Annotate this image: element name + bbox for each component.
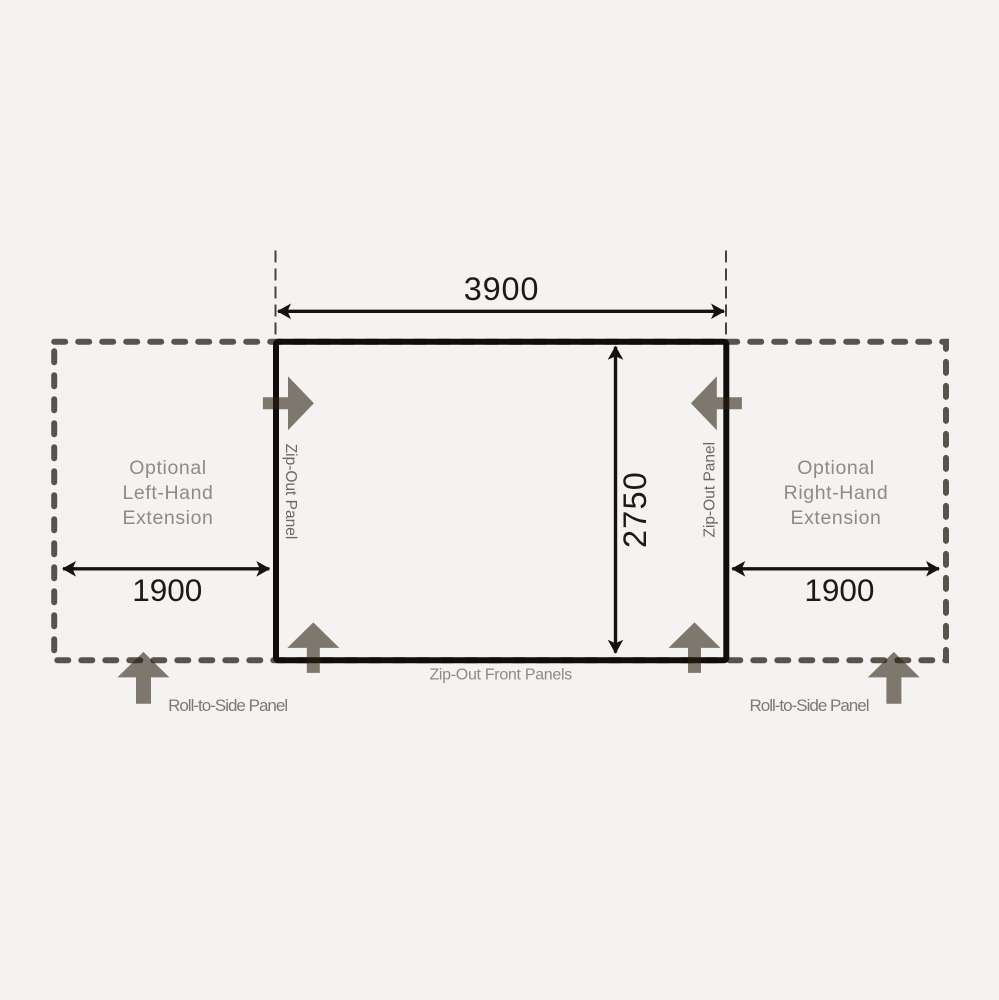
svg-text:1900: 1900 [132,572,202,608]
svg-text:2750: 2750 [617,471,653,548]
svg-text:Roll-to-Side Panel: Roll-to-Side Panel [749,696,868,715]
svg-text:1900: 1900 [804,572,874,608]
svg-text:Extension: Extension [790,507,881,529]
svg-text:Optional: Optional [797,457,874,479]
svg-text:Right-Hand: Right-Hand [784,482,889,504]
svg-text:Extension: Extension [122,507,213,529]
svg-text:Zip-Out Front Panels: Zip-Out Front Panels [429,667,572,684]
svg-text:Roll-to-Side Panel: Roll-to-Side Panel [168,696,287,715]
svg-text:Optional: Optional [129,457,206,479]
svg-text:Left-Hand: Left-Hand [122,482,213,504]
svg-text:3900: 3900 [464,271,540,307]
svg-text:Zip-Out Panel: Zip-Out Panel [701,442,718,538]
svg-text:Zip-Out Panel: Zip-Out Panel [282,444,299,540]
